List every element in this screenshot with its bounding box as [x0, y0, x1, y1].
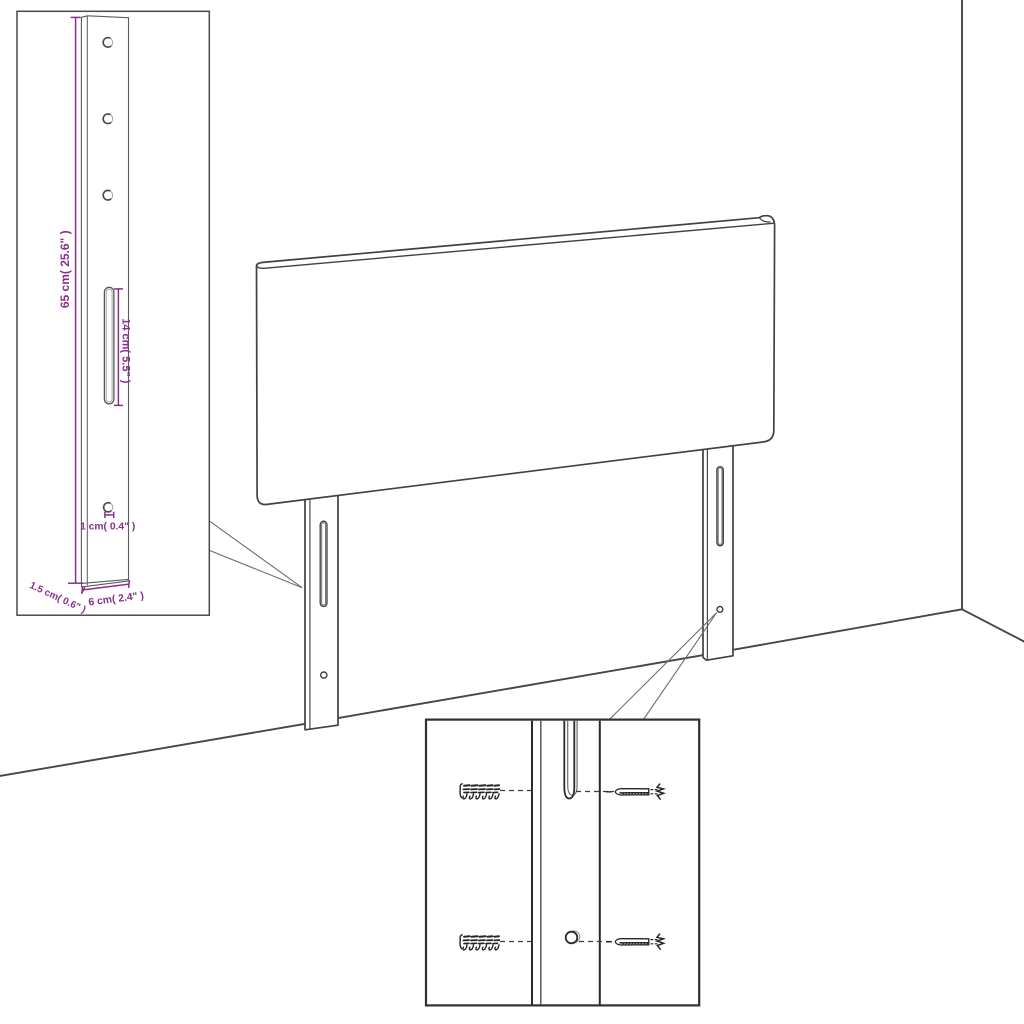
svg-text:14 cm( 5.5" ): 14 cm( 5.5" ) [120, 318, 132, 383]
svg-text:1 cm( 0.4" ): 1 cm( 0.4" ) [80, 521, 135, 532]
svg-text:65 cm( 25.6" ): 65 cm( 25.6" ) [58, 230, 72, 308]
